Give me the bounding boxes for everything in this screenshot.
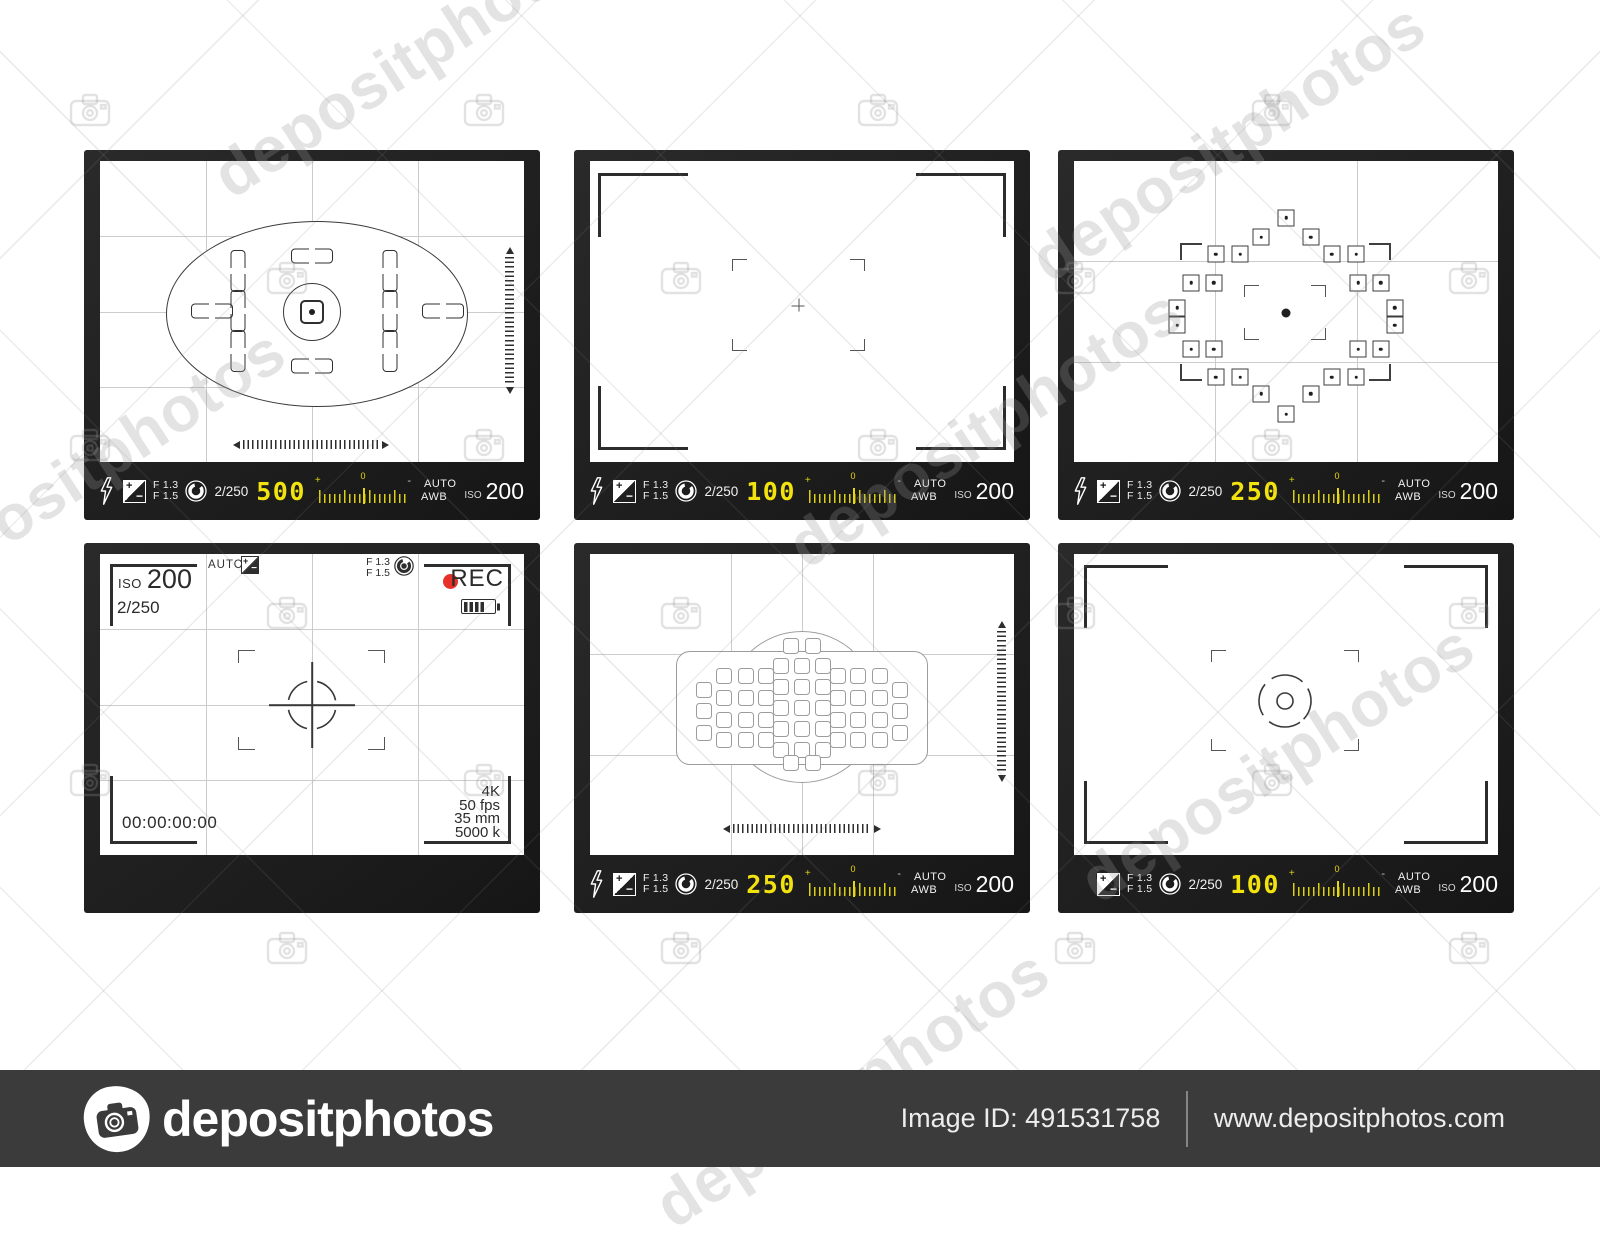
ruler-plus: + <box>1289 868 1295 879</box>
exposure-ruler: + 0 - <box>315 473 411 509</box>
ruler-minus: - <box>1381 475 1385 487</box>
iso-value: 200 <box>1460 478 1498 505</box>
af-square <box>892 725 908 741</box>
af-point <box>1302 385 1319 402</box>
af-point <box>1372 341 1389 358</box>
iso-readout: ISO200 <box>118 564 192 595</box>
af-point <box>1205 341 1222 358</box>
af-square <box>794 679 810 695</box>
pair-h <box>291 358 333 373</box>
iso-value: 200 <box>976 478 1014 505</box>
logo-text: depositphotos <box>162 1090 493 1148</box>
pair-v <box>383 330 398 372</box>
shutter-speed: 2/250 <box>704 877 738 892</box>
af-point <box>1278 209 1295 226</box>
af-square <box>794 700 810 716</box>
af-square <box>738 668 754 684</box>
center-af-dot <box>1282 309 1291 318</box>
af-point <box>1323 246 1340 263</box>
aperture-values: F 1.3F 1.5 <box>362 557 390 579</box>
af-square <box>830 668 846 684</box>
exposure-compensation-icon: +− <box>613 873 636 896</box>
viewfinder-1: +− F 1.3F 1.5 2/250 500 + 0 - AUTOAWB IS… <box>84 150 540 520</box>
iso-label: ISO <box>954 883 971 894</box>
main-value: 100 <box>746 477 796 506</box>
aperture-icon <box>1158 872 1182 896</box>
ruler-zero: 0 <box>850 471 855 481</box>
af-square <box>738 690 754 706</box>
af-point <box>1253 385 1270 402</box>
af-square <box>794 721 810 737</box>
af-square <box>696 682 712 698</box>
exposure-compensation-icon: +− <box>1097 873 1120 896</box>
focus-bracket <box>368 737 385 750</box>
af-square <box>783 755 799 771</box>
af-point <box>1253 229 1270 246</box>
target-circle <box>1255 671 1315 731</box>
flash-icon <box>588 476 605 506</box>
minus-glyph: − <box>251 563 257 574</box>
plus-glyph: + <box>616 480 622 492</box>
watermark-camera-icon <box>659 930 703 966</box>
viewfinder-3-screen <box>1074 161 1498 462</box>
minus-glyph: − <box>626 882 633 896</box>
iso-value: 200 <box>486 478 524 505</box>
status-bar: +− F 1.3F 1.5 2/250 250 + 0 - AUTOAWB IS… <box>1072 462 1498 520</box>
ruler-center-tick <box>1337 881 1339 897</box>
grid-line <box>100 629 524 630</box>
exposure-ruler: + 0 - <box>805 866 901 902</box>
af-square <box>794 658 810 674</box>
exposure-ruler: + 0 - <box>805 473 901 509</box>
flash-icon <box>98 476 115 506</box>
main-value: 500 <box>256 477 306 506</box>
af-square <box>850 668 866 684</box>
camera-icon <box>93 1097 142 1141</box>
iso-value: 200 <box>976 871 1014 898</box>
af-square <box>815 700 831 716</box>
shutter-speed: 2/250 <box>117 598 160 618</box>
ruler-plus: + <box>1289 475 1295 486</box>
color-temperature: 5000 k <box>454 826 500 840</box>
aperture-icon <box>1158 479 1182 503</box>
exposure-ruler: + 0 - <box>1289 473 1385 509</box>
af-point <box>1278 406 1295 423</box>
af-square <box>805 755 821 771</box>
pair-v <box>383 250 398 292</box>
pair-v <box>230 330 245 372</box>
pair-h <box>291 249 333 264</box>
corner-bracket <box>1404 781 1488 844</box>
focus-bracket <box>368 650 385 663</box>
af-point <box>1169 299 1186 316</box>
minus-glyph: − <box>1110 489 1117 503</box>
af-point <box>1207 246 1224 263</box>
focus-bracket <box>1311 328 1326 340</box>
af-square <box>716 712 732 728</box>
af-point <box>1205 274 1222 291</box>
af-point <box>1207 369 1224 386</box>
focus-bracket <box>1344 739 1359 751</box>
af-square <box>783 638 799 654</box>
plus-glyph: + <box>1100 873 1106 885</box>
pair-v <box>230 250 245 292</box>
corner-bracket <box>916 386 1006 450</box>
shutter-speed: 2/250 <box>214 484 248 499</box>
af-point <box>1232 369 1249 386</box>
crosshair-icon <box>792 299 805 312</box>
af-point <box>1302 229 1319 246</box>
corner-bracket <box>1084 781 1168 844</box>
aperture-values: F 1.3F 1.5 <box>1127 480 1152 503</box>
ruler-zero: 0 <box>360 471 365 481</box>
focus-bracket <box>238 737 255 750</box>
ruler-minus: - <box>1381 868 1385 880</box>
white-balance: AUTOAWB <box>1395 478 1430 505</box>
status-bar: +− F 1.3F 1.5 2/250 100 + 0 - AUTOAWB IS… <box>1072 855 1498 913</box>
af-square <box>773 700 789 716</box>
iso-label: ISO <box>464 490 481 501</box>
watermark-camera-icon <box>462 92 506 128</box>
plus-glyph: + <box>1100 480 1106 492</box>
af-square <box>758 668 774 684</box>
focus-bracket <box>850 259 865 271</box>
center-focus-area <box>732 259 866 351</box>
corner-bracket <box>916 173 1006 237</box>
white-balance: AUTOAWB <box>911 478 946 505</box>
iso-label: ISO <box>1438 490 1455 501</box>
watermark-camera-icon <box>856 92 900 128</box>
ruler-zero: 0 <box>1334 471 1339 481</box>
site-url: www.depositphotos.com <box>1214 1103 1505 1134</box>
af-square <box>850 732 866 748</box>
af-square <box>738 732 754 748</box>
viewfinder-4: ISO200 2/250 AUTO +− F 1.3F 1.5 REC 00:0… <box>84 543 540 913</box>
af-point <box>1348 369 1365 386</box>
ruler-minus: - <box>407 475 411 487</box>
ruler-plus: + <box>315 475 321 486</box>
auto-mode-label: AUTO <box>208 559 244 571</box>
af-square <box>815 721 831 737</box>
af-square <box>805 638 821 654</box>
shutter-speed: 2/250 <box>1188 877 1222 892</box>
minus-glyph: − <box>136 489 143 503</box>
af-square <box>830 712 846 728</box>
center-focus-square <box>300 300 324 324</box>
shutter-speed: 2/250 <box>1188 484 1222 499</box>
exposure-compensation-icon: +− <box>241 556 259 574</box>
watermark-camera-icon <box>265 930 309 966</box>
af-square <box>872 690 888 706</box>
af-square <box>892 703 908 719</box>
focus-bracket <box>238 650 255 663</box>
ruler-minus: - <box>897 475 901 487</box>
aperture-values: F 1.3F 1.5 <box>643 873 668 896</box>
focus-bracket <box>1244 285 1259 297</box>
exposure-ruler: + 0 - <box>1289 866 1385 902</box>
exposure-compensation-icon: +− <box>613 480 636 503</box>
af-square <box>815 679 831 695</box>
af-square <box>758 732 774 748</box>
white-balance: AUTOAWB <box>1395 871 1430 898</box>
watermark-camera-icon <box>68 92 112 128</box>
white-balance: AUTOAWB <box>421 478 456 505</box>
iso-label: ISO <box>1438 883 1455 894</box>
footer-bar: depositphotos Image ID: 491531758 www.de… <box>0 1070 1600 1167</box>
pair-v <box>383 290 398 332</box>
af-square <box>758 712 774 728</box>
ruler-center-tick <box>853 881 855 897</box>
viewfinder-2-screen <box>590 161 1014 462</box>
focus-bracket <box>850 339 865 351</box>
divider <box>1186 1091 1188 1147</box>
focus-bracket <box>732 259 747 271</box>
aperture-values: F 1.3F 1.5 <box>153 480 178 503</box>
depositphotos-logo: depositphotos <box>84 1086 493 1152</box>
horizontal-scale <box>733 824 871 833</box>
af-point <box>1350 341 1367 358</box>
viewfinder-6-screen <box>1074 554 1498 855</box>
minus-glyph: − <box>1110 882 1117 896</box>
focus-bracket <box>1344 650 1359 662</box>
focus-bracket <box>1311 285 1326 297</box>
ruler-zero: 0 <box>850 864 855 874</box>
viewfinder-1-screen <box>100 161 524 462</box>
af-square <box>850 690 866 706</box>
af-squares <box>590 554 1014 855</box>
af-point <box>1323 369 1340 386</box>
viewfinder-6: +− F 1.3F 1.5 2/250 100 + 0 - AUTOAWB IS… <box>1058 543 1514 913</box>
af-square <box>872 712 888 728</box>
aperture-icon <box>184 479 208 503</box>
aperture-icon <box>674 872 698 896</box>
flash-icon <box>588 869 605 899</box>
af-square <box>773 721 789 737</box>
plus-glyph: + <box>126 480 132 492</box>
af-square <box>872 668 888 684</box>
af-square <box>830 690 846 706</box>
timecode: 00:00:00:00 <box>122 813 217 833</box>
pair-h <box>191 303 233 318</box>
main-value: 250 <box>1230 477 1280 506</box>
viewfinder-5-screen <box>590 554 1014 855</box>
af-point <box>1183 341 1200 358</box>
corner-bracket <box>598 173 688 237</box>
af-square <box>773 658 789 674</box>
ruler-minus: - <box>897 868 901 880</box>
aperture-icon <box>674 479 698 503</box>
af-point <box>1232 246 1249 263</box>
af-point <box>1386 299 1403 316</box>
footer-info: Image ID: 491531758 www.depositphotos.co… <box>901 1091 1505 1147</box>
vertical-scale <box>505 257 514 383</box>
af-square <box>850 712 866 728</box>
af-point <box>1386 317 1403 334</box>
iso-label: ISO <box>954 490 971 501</box>
af-square <box>716 668 732 684</box>
watermark-camera-icon <box>1447 930 1491 966</box>
battery-level <box>464 602 485 612</box>
ruler-plus: + <box>805 475 811 486</box>
corner-bracket <box>1084 565 1168 628</box>
watermark-camera-icon <box>1250 92 1294 128</box>
minus-glyph: − <box>626 489 633 503</box>
center-focus-area <box>238 650 385 750</box>
af-point <box>1183 274 1200 291</box>
image-id: Image ID: 491531758 <box>901 1103 1161 1134</box>
plus-glyph: + <box>243 556 248 566</box>
ruler-zero: 0 <box>1334 864 1339 874</box>
af-square <box>716 732 732 748</box>
af-square <box>830 732 846 748</box>
af-point <box>1169 317 1186 334</box>
focus-bracket <box>1211 650 1226 662</box>
viewfinder-3: +− F 1.3F 1.5 2/250 250 + 0 - AUTOAWB IS… <box>1058 150 1514 520</box>
af-square <box>872 732 888 748</box>
exposure-compensation-icon: +− <box>123 480 146 503</box>
af-square <box>892 682 908 698</box>
viewfinder-4-screen: ISO200 2/250 AUTO +− F 1.3F 1.5 REC 00:0… <box>100 554 524 855</box>
focus-bracket <box>1211 739 1226 751</box>
ruler-center-tick <box>363 488 365 504</box>
af-square <box>696 725 712 741</box>
ruler-center-tick <box>853 488 855 504</box>
ruler-plus: + <box>805 868 811 879</box>
iso-value: 200 <box>1460 871 1498 898</box>
status-bar: +− F 1.3F 1.5 2/250 250 + 0 - AUTOAWB IS… <box>588 855 1014 913</box>
aperture-values: F 1.3F 1.5 <box>643 480 668 503</box>
watermark-camera-icon <box>1053 930 1097 966</box>
focus-bracket <box>1244 328 1259 340</box>
corner-bracket <box>1404 565 1488 628</box>
rec-label: REC <box>450 565 504 593</box>
shutter-speed: 2/250 <box>704 484 738 499</box>
viewfinder-2: +− F 1.3F 1.5 2/250 100 + 0 - AUTOAWB IS… <box>574 150 1030 520</box>
af-square <box>758 690 774 706</box>
white-balance: AUTOAWB <box>911 871 946 898</box>
horizontal-scale <box>243 440 379 449</box>
focus-bracket <box>732 339 747 351</box>
corner-bracket <box>110 776 197 844</box>
viewfinder-5: +− F 1.3F 1.5 2/250 250 + 0 - AUTOAWB IS… <box>574 543 1030 913</box>
af-point <box>1348 246 1365 263</box>
exposure-compensation-icon: +− <box>1097 480 1120 503</box>
af-point <box>1350 274 1367 291</box>
af-square <box>716 690 732 706</box>
af-point <box>1372 274 1389 291</box>
vertical-scale <box>997 631 1006 772</box>
af-square <box>773 679 789 695</box>
af-square <box>696 703 712 719</box>
camera-logo-icon <box>80 1081 155 1156</box>
recording-specs: 4K 50 fps 35 mm 5000 k <box>454 785 500 839</box>
af-square <box>738 712 754 728</box>
flash-icon <box>1072 476 1089 506</box>
pair-h <box>422 303 464 318</box>
plus-glyph: + <box>616 873 622 885</box>
main-value: 250 <box>746 870 796 899</box>
ruler-center-tick <box>1337 488 1339 504</box>
battery-icon <box>461 599 496 614</box>
af-square <box>815 658 831 674</box>
status-bar: +− F 1.3F 1.5 2/250 100 + 0 - AUTOAWB IS… <box>588 462 1014 520</box>
main-value: 100 <box>1230 870 1280 899</box>
aperture-icon <box>393 555 415 577</box>
corner-bracket <box>598 386 688 450</box>
aperture-values: F 1.3F 1.5 <box>1127 873 1152 896</box>
status-bar: +− F 1.3F 1.5 2/250 500 + 0 - AUTOAWB IS… <box>98 462 524 520</box>
